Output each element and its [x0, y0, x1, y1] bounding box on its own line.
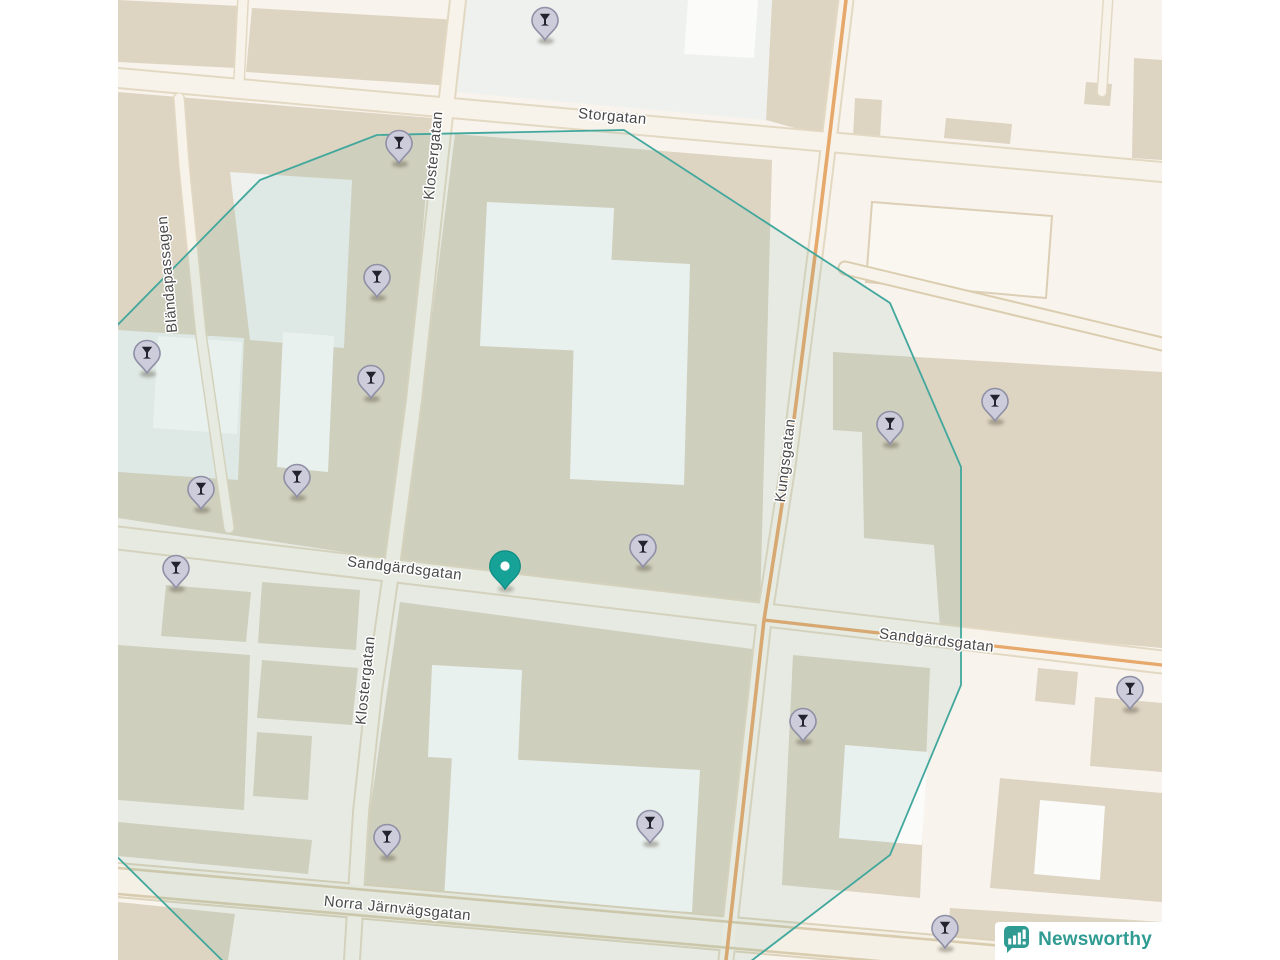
- map-canvas[interactable]: StorgatanKlostergatanBländapassagenSandg…: [118, 0, 1162, 960]
- base-map: StorgatanKlostergatanBländapassagenSandg…: [118, 0, 1162, 960]
- newsworthy-brand-text: Newsworthy: [1038, 929, 1152, 951]
- map-screenshot: StorgatanKlostergatanBländapassagenSandg…: [0, 0, 1280, 960]
- newsworthy-badge[interactable]: Newsworthy: [995, 922, 1162, 960]
- marker-center-dot: [500, 561, 509, 570]
- newsworthy-logo-icon: [1003, 925, 1030, 955]
